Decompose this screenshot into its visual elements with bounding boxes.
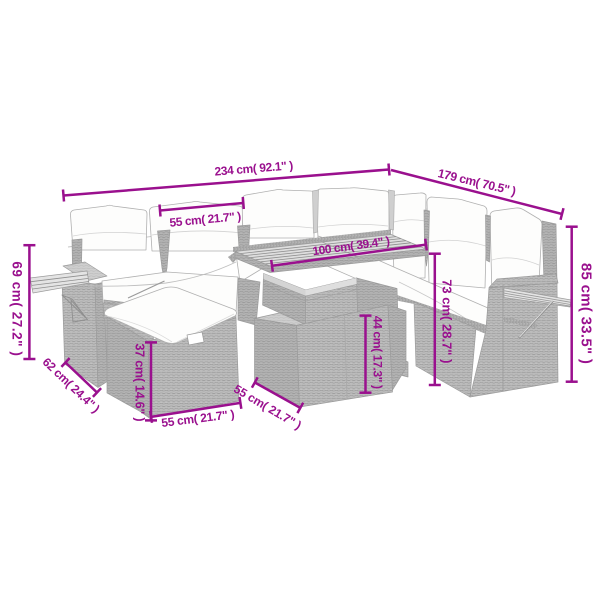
svg-text:37 cm( 14.6" ): 37 cm( 14.6" ) — [133, 344, 147, 422]
svg-text:69 cm( 27.2" ): 69 cm( 27.2" ) — [9, 261, 24, 356]
svg-text:44 cm( 17.3" ): 44 cm( 17.3" ) — [370, 316, 384, 389]
svg-text:85 cm( 33.5" ): 85 cm( 33.5" ) — [578, 263, 595, 364]
svg-text:73 cm( 28.7" ): 73 cm( 28.7" ) — [440, 279, 455, 363]
